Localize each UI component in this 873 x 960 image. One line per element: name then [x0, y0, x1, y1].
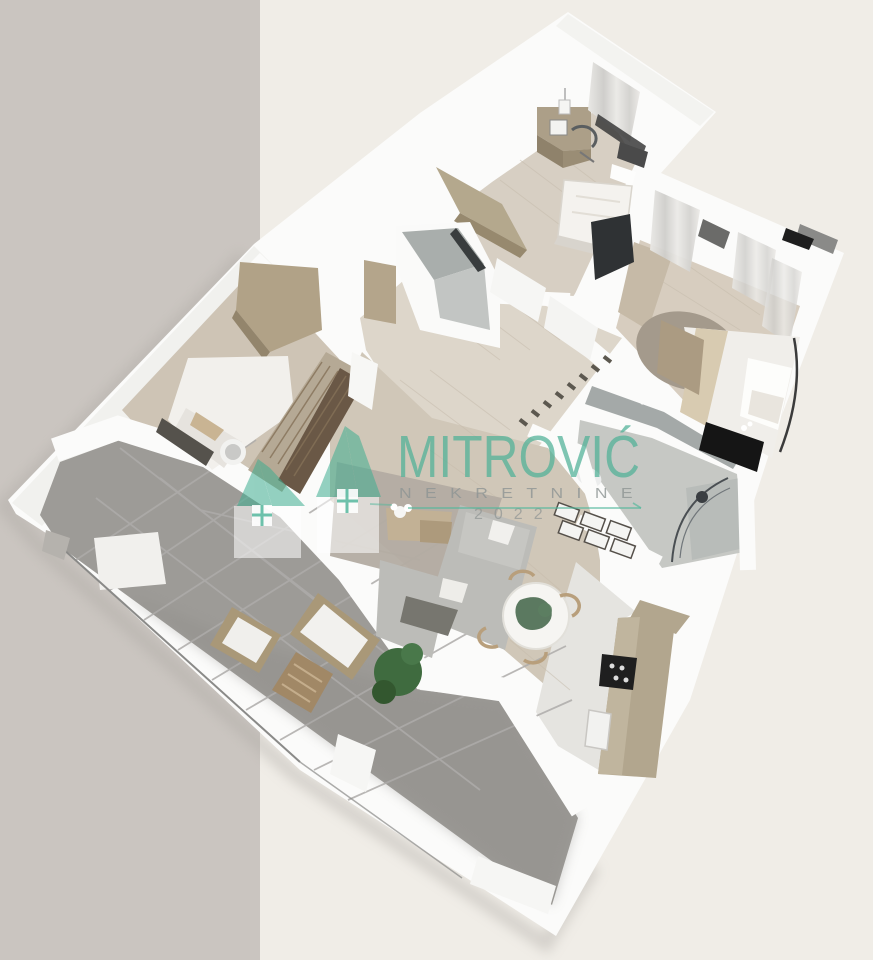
svg-text:MITROVIĆ: MITROVIĆ	[397, 424, 640, 490]
svg-text:NEKRETNINE: NEKRETNINE	[399, 485, 646, 502]
